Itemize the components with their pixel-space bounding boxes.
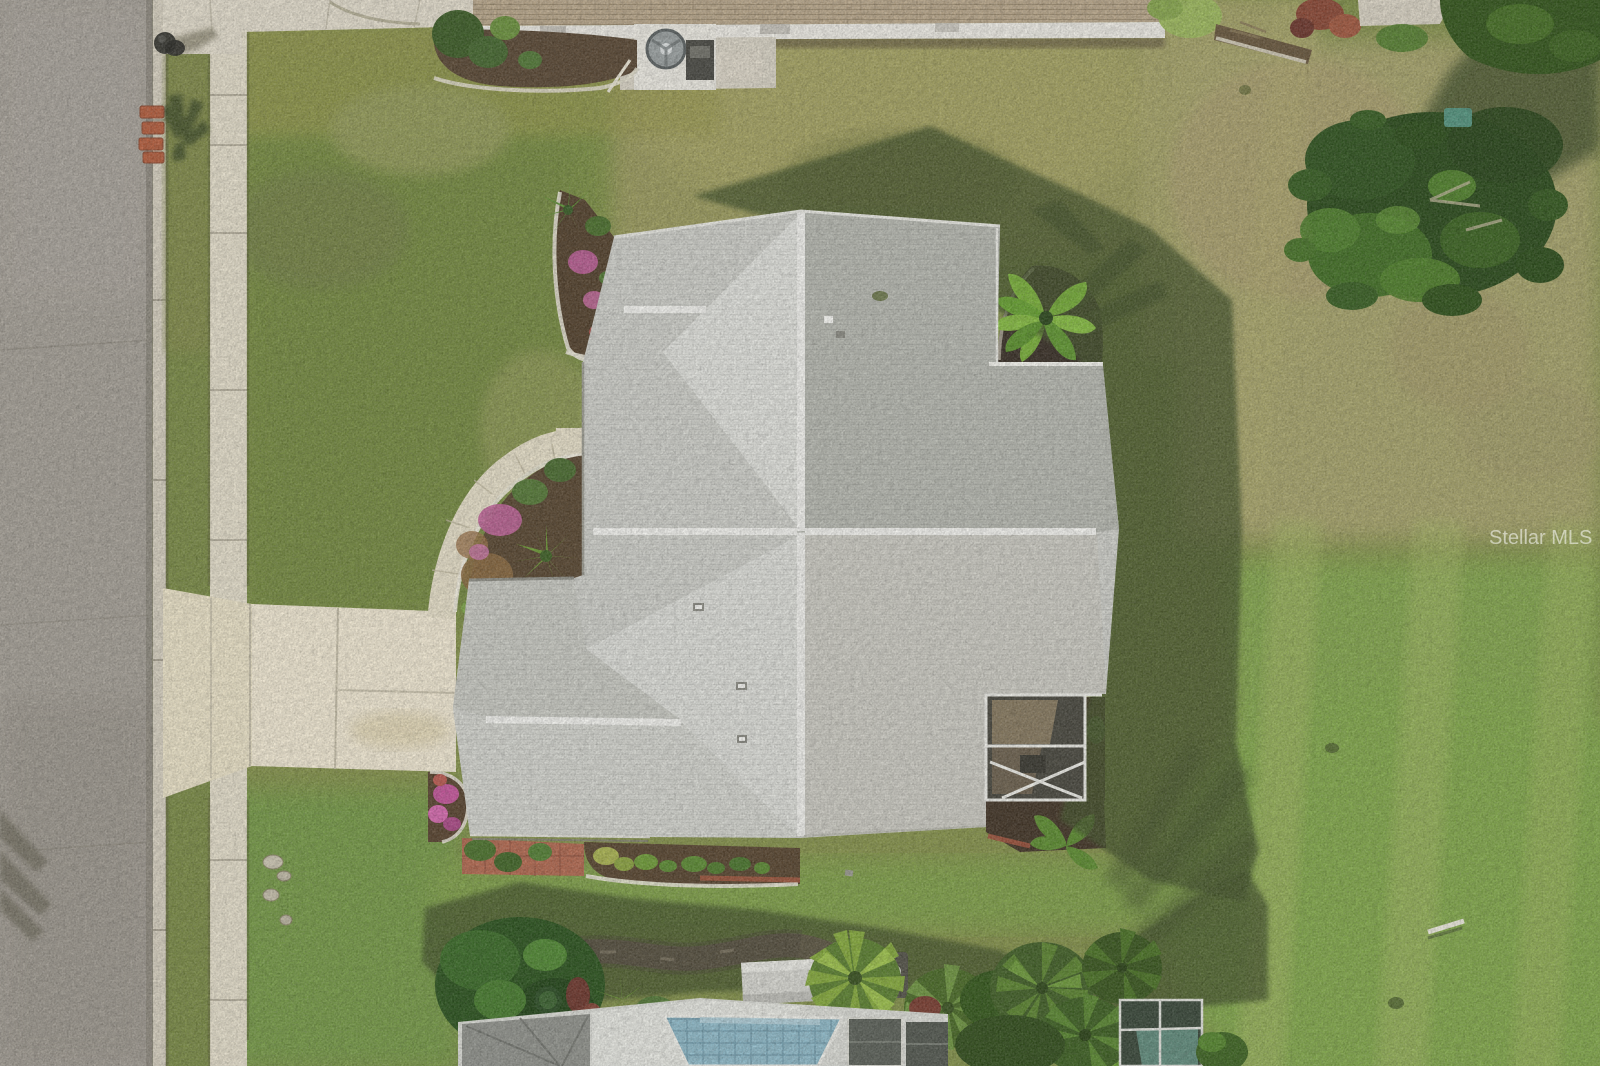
svg-text:Stellar MLS: Stellar MLS [1489,527,1592,549]
